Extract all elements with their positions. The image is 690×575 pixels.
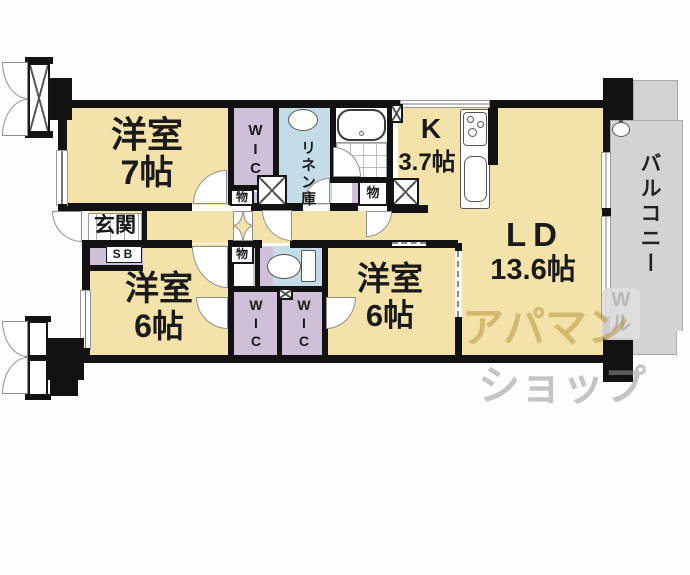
wall	[290, 240, 458, 248]
kitchen-name-label: K	[413, 114, 449, 143]
stove-burner-icon	[468, 128, 477, 137]
wall	[488, 103, 498, 165]
bedroom7-window	[56, 150, 68, 206]
kitchen-size-label: 3.7帖	[396, 150, 458, 175]
stove-burner-icon	[467, 116, 474, 123]
ld-name-label: LD	[494, 218, 576, 253]
outer-wall-top	[58, 100, 603, 108]
watermark-badge: W ル	[602, 288, 640, 340]
balcony-notch	[676, 331, 685, 356]
watermark-badge-line2: ル	[602, 312, 640, 336]
bedroom7-name-label: 洋室	[77, 116, 217, 154]
watermark-badge-line1: W	[602, 288, 640, 312]
wic-bottom-left-label: WIC	[245, 295, 263, 353]
bathtub-drain-icon	[359, 131, 364, 136]
ld-size-label: 13.6帖	[472, 255, 594, 285]
pipe-shaft	[278, 288, 293, 300]
floor-plan: バルコニー	[0, 0, 690, 575]
wall	[603, 118, 610, 154]
door-swing	[2, 321, 28, 357]
storage-label-hall: 物	[232, 248, 252, 261]
wall	[25, 394, 51, 400]
pipe-shaft	[392, 178, 419, 206]
wall-corner-bottom-right	[603, 338, 633, 382]
wall	[330, 203, 358, 211]
wall-block-bottom-left-step	[50, 378, 78, 396]
wall-block-bottom-left	[46, 338, 84, 380]
landing-box	[28, 321, 48, 357]
wall	[142, 211, 147, 244]
bedroom7-size-label: 7帖	[77, 156, 217, 192]
entrance-label: 玄関	[90, 215, 140, 237]
sliding-door	[457, 251, 462, 317]
toilet-bowl-icon	[267, 254, 301, 279]
balcony-faucet-icon	[612, 122, 630, 137]
outer-wall-bottom	[82, 355, 610, 363]
storage-label-bath: 物	[363, 186, 383, 200]
wall	[455, 243, 462, 251]
wic-top-label: WIC	[243, 113, 263, 187]
storage-label-top: 物	[232, 191, 252, 204]
kitchen-sink-icon	[464, 156, 487, 202]
door-swing	[2, 62, 28, 99]
linen-closet-label: リネン庫	[293, 134, 315, 214]
washbasin-icon	[288, 109, 318, 131]
bedroom6-right-name-label: 洋室	[325, 262, 455, 297]
toilet-tank-icon	[301, 250, 316, 282]
ld-window-upper	[601, 152, 611, 210]
bedroom6-left-size-label: 6帖	[89, 310, 229, 344]
kitchen-window	[400, 100, 490, 108]
pipe-shaft	[390, 104, 403, 123]
wall-corner-top-right	[603, 78, 633, 120]
door-swing	[2, 357, 28, 394]
stove-burner-icon	[477, 121, 484, 128]
bathtub-icon	[337, 109, 386, 141]
wall	[67, 203, 192, 211]
door-swing-entrance	[52, 211, 82, 242]
door-swing	[2, 99, 28, 136]
bedroom6-right-size-label: 6帖	[325, 300, 455, 333]
wall	[25, 131, 53, 138]
shoe-box-label: SB	[106, 248, 142, 261]
balcony-area-upper	[633, 80, 678, 124]
landing-box	[28, 359, 48, 396]
wall	[273, 103, 279, 177]
elevator-shaft	[28, 63, 50, 133]
opening-marker	[392, 242, 426, 246]
wall	[255, 243, 260, 291]
wic-bottom-right-label: WIC	[293, 295, 311, 353]
wall	[58, 204, 67, 211]
wall	[388, 205, 428, 213]
bedroom6-left-name-label: 洋室	[89, 272, 229, 308]
